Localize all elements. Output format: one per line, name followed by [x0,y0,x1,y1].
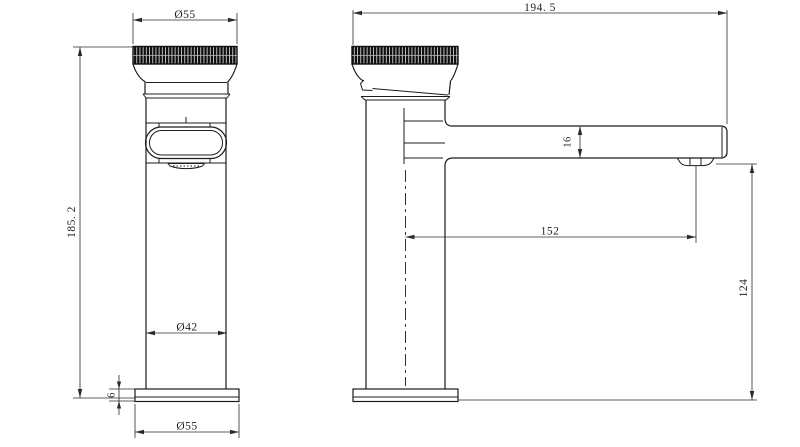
spout-arm [452,126,727,158]
side-spout-reach-label: 152 [541,226,560,238]
front-top-diameter-label: Ø55 [174,9,195,21]
front-view: Ø55 185. 2 Ø42 6 [66,9,239,438]
faucet-body-side [366,100,452,389]
handle-flare [133,64,237,98]
front-body-diameter-label: Ø42 [176,322,197,334]
knurled-handle [133,47,237,65]
side-view: 194. 5 16 152 124 [352,2,757,402]
handle-flare-side [352,64,458,100]
dim-front-base-height: 6 [107,375,136,415]
side-total-length-label: 194. 5 [524,2,556,14]
spout-ring-front [146,117,227,163]
dim-front-height: 185. 2 [66,47,135,398]
dim-front-top-diameter: Ø55 [133,9,237,44]
dim-side-outlet-height: 124 [458,164,757,400]
front-height-label: 185. 2 [66,206,78,238]
dim-side-spout-height: 16 [563,126,583,158]
dim-side-spout-reach: 152 [406,166,697,243]
side-spout-height-label: 16 [563,136,574,148]
dim-front-base-diameter: Ø55 [135,404,239,438]
technical-drawing: Ø55 185. 2 Ø42 6 [0,0,800,447]
knurled-handle-side [352,47,458,65]
base-flange-front [135,389,239,402]
aerator-side [677,158,714,166]
base-flange-side [353,389,458,402]
faucet-body-front [146,98,226,389]
drawing-sheet: Ø55 185. 2 Ø42 6 [0,0,800,447]
aerator-front [168,164,205,169]
front-base-height-label: 6 [107,392,118,398]
side-outlet-height-label: 124 [738,279,750,298]
dim-front-body-diameter: Ø42 [146,322,227,336]
front-base-diameter-label: Ø55 [176,421,197,433]
